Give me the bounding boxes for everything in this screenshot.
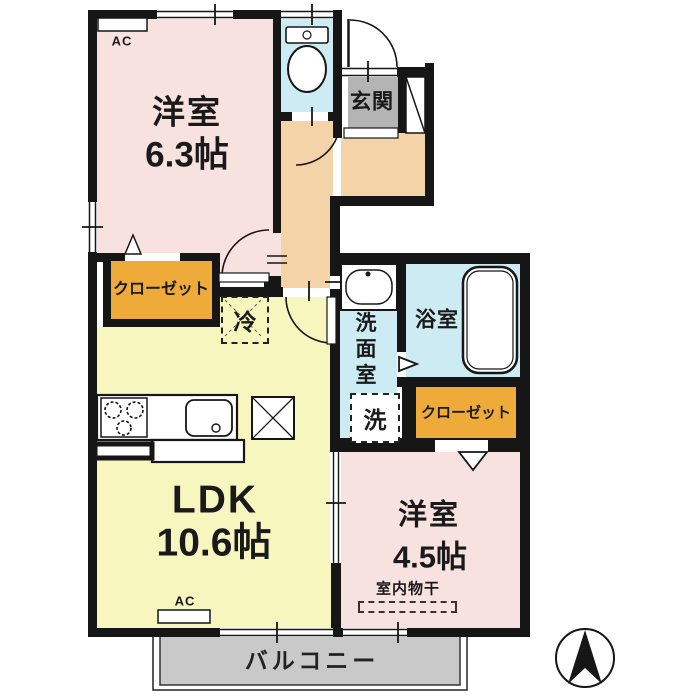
bathtub	[463, 267, 517, 373]
washroom-char-2: 面	[356, 337, 377, 363]
kitchen-counter	[95, 395, 294, 462]
room-western-bottom-area: 4.5帖	[393, 542, 467, 573]
ac-unit-bottom	[158, 610, 210, 623]
door-arc-room63	[222, 230, 269, 277]
washroom-label: 洗 面 室	[356, 311, 377, 389]
wall-wash-bath-divider	[397, 264, 406, 352]
room-western-top-name: 洋室	[152, 96, 222, 129]
ac-label-top: AC	[112, 35, 133, 48]
wall-hall-right	[425, 63, 434, 206]
door-leaf-hall-ldk	[327, 297, 336, 344]
toilet-fixture	[286, 27, 328, 92]
compass-north-icon	[556, 629, 614, 687]
kitchen-partition	[95, 444, 152, 458]
washroom-char-3: 室	[356, 363, 377, 389]
floorplan: 洋室 6.3帖 LDK 10.6帖 洋室 4.5帖 玄関 浴室 洗 面 室 クロ…	[0, 0, 700, 700]
washing-machine-label: 洗	[364, 401, 387, 435]
indoor-drying-label: 室内物干	[376, 582, 440, 597]
room-western-bottom-name: 洋室	[398, 502, 460, 531]
ac-unit-top	[98, 18, 147, 31]
closet-top-door-mark	[125, 235, 141, 254]
washroom-char-1: 洗	[356, 311, 377, 337]
wall-right	[520, 253, 530, 637]
closet-bottom-label: クローゼット	[421, 406, 511, 421]
entrance-step-edge	[344, 128, 398, 138]
closet-bottom-door-mark	[459, 452, 487, 470]
wall-ldk45-lower	[331, 563, 341, 637]
closet-bottom-opening	[435, 440, 488, 452]
kitchen-sink	[186, 400, 232, 436]
refrigerator-label: 冷	[234, 303, 257, 337]
door-leaf-room63	[219, 273, 269, 282]
washstand	[341, 264, 397, 310]
closet-top-label: クローゼット	[113, 282, 209, 298]
ac-label-bottom: AC	[175, 595, 196, 608]
wall-room63-right	[273, 19, 281, 233]
entrance-label: 玄関	[350, 92, 394, 113]
wall-toilet-right	[333, 19, 342, 138]
indoor-drying-bar	[358, 601, 457, 613]
ldk-area: 10.6帖	[157, 524, 272, 563]
wall-entrance-right	[398, 70, 406, 133]
balcony-label: バルコニー	[245, 650, 380, 673]
room-western-top-area: 6.3帖	[145, 138, 229, 173]
ldk-name: LDK	[172, 481, 258, 520]
wall-entry-stub	[397, 67, 425, 77]
bath-door-mark	[399, 357, 417, 371]
sink-drain	[212, 424, 220, 432]
refrigerator-space: 冷	[221, 296, 269, 344]
bathroom-label: 浴室	[415, 310, 459, 331]
door-arc-entrance	[350, 20, 397, 67]
door-arc-hall-ldk	[286, 297, 332, 343]
wall-bath-top	[330, 253, 520, 264]
washing-machine-space: 洗	[350, 393, 400, 443]
counter-return	[152, 440, 244, 462]
wall-left	[88, 10, 97, 637]
wall-hall-bottom	[330, 196, 434, 206]
